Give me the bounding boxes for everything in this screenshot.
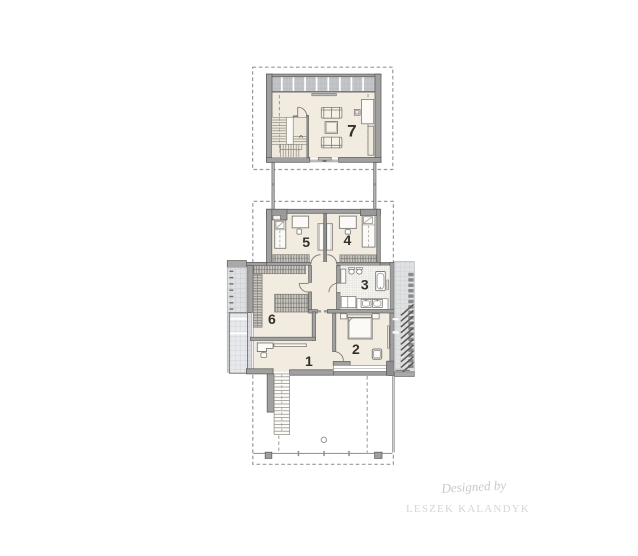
svg-text:6: 6 [268, 311, 276, 327]
svg-text:LESZEK KALANDYK: LESZEK KALANDYK [406, 503, 530, 515]
svg-text:1: 1 [305, 353, 313, 369]
svg-text:3: 3 [361, 277, 369, 293]
svg-text:2: 2 [352, 341, 360, 357]
svg-text:5: 5 [302, 234, 310, 250]
svg-text:4: 4 [344, 232, 352, 248]
svg-text:7: 7 [347, 121, 356, 140]
